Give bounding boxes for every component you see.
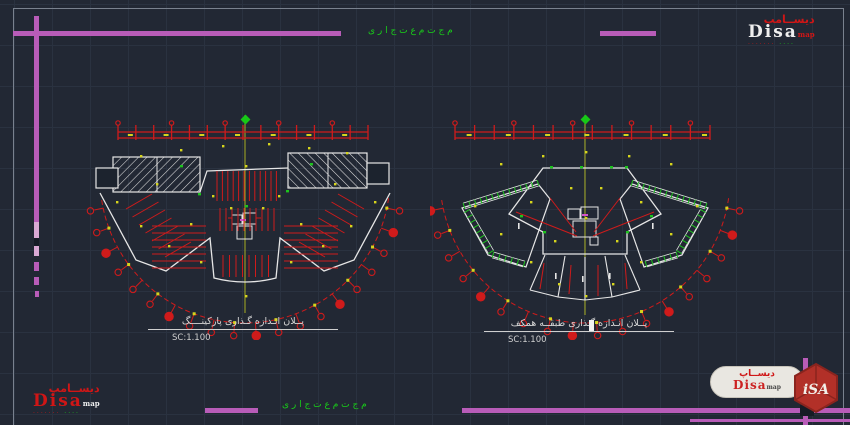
border-bottom-seg1	[205, 408, 258, 413]
frame-right	[843, 8, 844, 425]
border-top-right	[600, 31, 656, 36]
disamap-logo-bottom-left: دیســامپ Disamap ······· ····	[33, 383, 100, 417]
scale-label: SC:1.100	[148, 333, 338, 343]
datum-diamond-icon	[241, 115, 251, 125]
title-text: پــلان انـدازه گـذاری پارکینــــگ	[148, 316, 338, 327]
border-left-dash2	[34, 277, 39, 285]
frame-left	[13, 8, 14, 425]
logo-latin-text: Disamap	[748, 24, 815, 41]
border-left-notch	[34, 238, 39, 246]
border-left-dash1	[34, 262, 39, 271]
svg-text:iSA: iSA	[803, 382, 829, 398]
logo-contact-dots: ······· ····	[748, 42, 815, 48]
disamap-logo-top-right: دیســامپ Disamap ······· ····	[748, 14, 815, 48]
logo-contact-dots: ······· ····	[33, 411, 100, 417]
core-elevator	[568, 207, 598, 245]
border-bottom-edge	[690, 419, 850, 422]
frame-top	[13, 8, 844, 9]
title-text: پــلان انـدازه گـذاری طبقــه همکف	[484, 318, 674, 329]
title-underline	[484, 331, 674, 332]
plan-title-parking: پــلان انـدازه گـذاری پارکینــــگ SC:1.1…	[148, 316, 338, 343]
scale-label: SC:1.100	[484, 335, 674, 345]
border-left-vertical	[34, 16, 39, 222]
title-underline	[148, 329, 338, 330]
border-top-left	[13, 31, 341, 36]
cad-canvas[interactable]: م ج ت م ع ت ج ا ر ی م ج ت م ع ت ج ا ر ی	[0, 0, 850, 425]
sheet-note-bottom: م ج ت م ع ت ج ا ر ی	[282, 400, 367, 410]
bottom-rooms	[530, 255, 640, 300]
plan-title-ground-floor: پــلان انـدازه گـذاری طبقــه همکف SC:1.1…	[484, 318, 674, 345]
isa-cube-logo: iSA	[790, 362, 842, 414]
hatched-block-left	[96, 157, 200, 192]
border-left-dash3	[35, 291, 39, 297]
sheet-note-top: م ج ت م ع ت ج ا ر ی	[368, 26, 453, 36]
datum-diamond-icon	[581, 115, 591, 125]
text-cursor[interactable]	[589, 320, 594, 331]
logo-latin-text: Disamap	[33, 393, 100, 410]
hatched-block-right	[288, 153, 389, 188]
plan-ground-floor-drawing[interactable]	[430, 105, 750, 340]
plan-parking-drawing[interactable]	[80, 105, 410, 340]
